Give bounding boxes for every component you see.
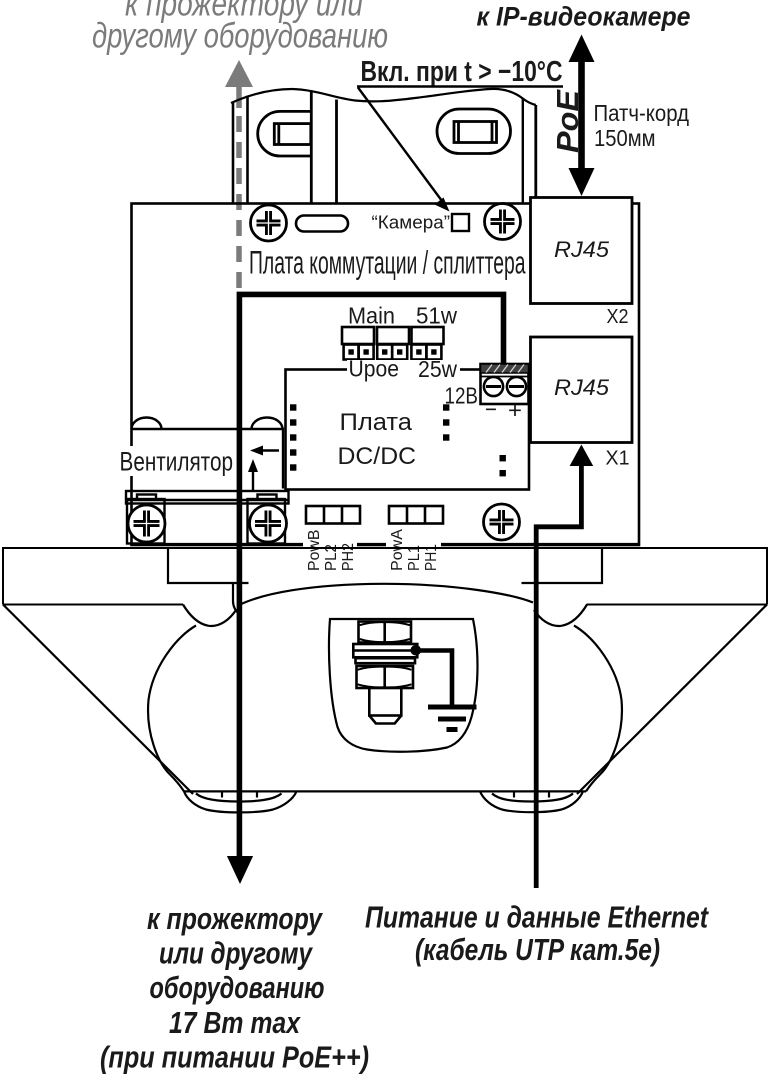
svg-text:X2: X2 bbox=[607, 306, 629, 328]
svg-text:150мм: 150мм bbox=[594, 125, 656, 151]
svg-text:к IP-видеокамере: к IP-видеокамере bbox=[477, 2, 691, 32]
svg-text:Плата коммутации / сплиттера: Плата коммутации / сплиттера bbox=[249, 245, 526, 281]
svg-text:PowB: PowB bbox=[306, 530, 323, 572]
svg-text:Плата: Плата bbox=[340, 409, 413, 436]
svg-text:25w: 25w bbox=[418, 356, 457, 382]
svg-text:PowA: PowA bbox=[389, 528, 406, 571]
svg-text:12В: 12В bbox=[445, 383, 479, 409]
svg-text:Main: Main bbox=[348, 303, 395, 329]
svg-text:RJ45: RJ45 bbox=[554, 237, 610, 262]
svg-text:или другому: или другому bbox=[159, 936, 313, 971]
svg-text:Патч-корд: Патч-корд bbox=[594, 100, 690, 126]
svg-text:оборудованию: оборудованию bbox=[150, 970, 325, 1005]
svg-text:51w: 51w bbox=[416, 303, 457, 329]
svg-text:X1: X1 bbox=[606, 448, 630, 470]
svg-text:RJ45: RJ45 bbox=[554, 375, 610, 400]
svg-text:Upoe: Upoe bbox=[349, 356, 400, 382]
svg-text:другому оборудованию: другому оборудованию bbox=[92, 17, 388, 56]
svg-text:+: + bbox=[508, 397, 522, 423]
svg-text:(кабель UTP кат.5е): (кабель UTP кат.5е) bbox=[415, 932, 660, 967]
svg-text:к прожектору: к прожектору bbox=[147, 901, 323, 936]
svg-text:17 Вт max: 17 Вт max bbox=[169, 1005, 301, 1040]
svg-text:Вентилятор: Вентилятор bbox=[120, 447, 234, 477]
svg-text:PoE: PoE bbox=[550, 89, 585, 153]
svg-text:Питание и данные Ethernet: Питание и данные Ethernet bbox=[365, 900, 709, 935]
svg-text:DC/DC: DC/DC bbox=[338, 443, 417, 470]
svg-text:Вкл. при t > −10°C: Вкл. при t > −10°C bbox=[361, 56, 563, 88]
svg-text:“Камера”: “Камера” bbox=[372, 212, 451, 233]
svg-text:(при питании PoE++): (при питании PoE++) bbox=[100, 1039, 369, 1074]
svg-text:−: − bbox=[485, 396, 497, 422]
